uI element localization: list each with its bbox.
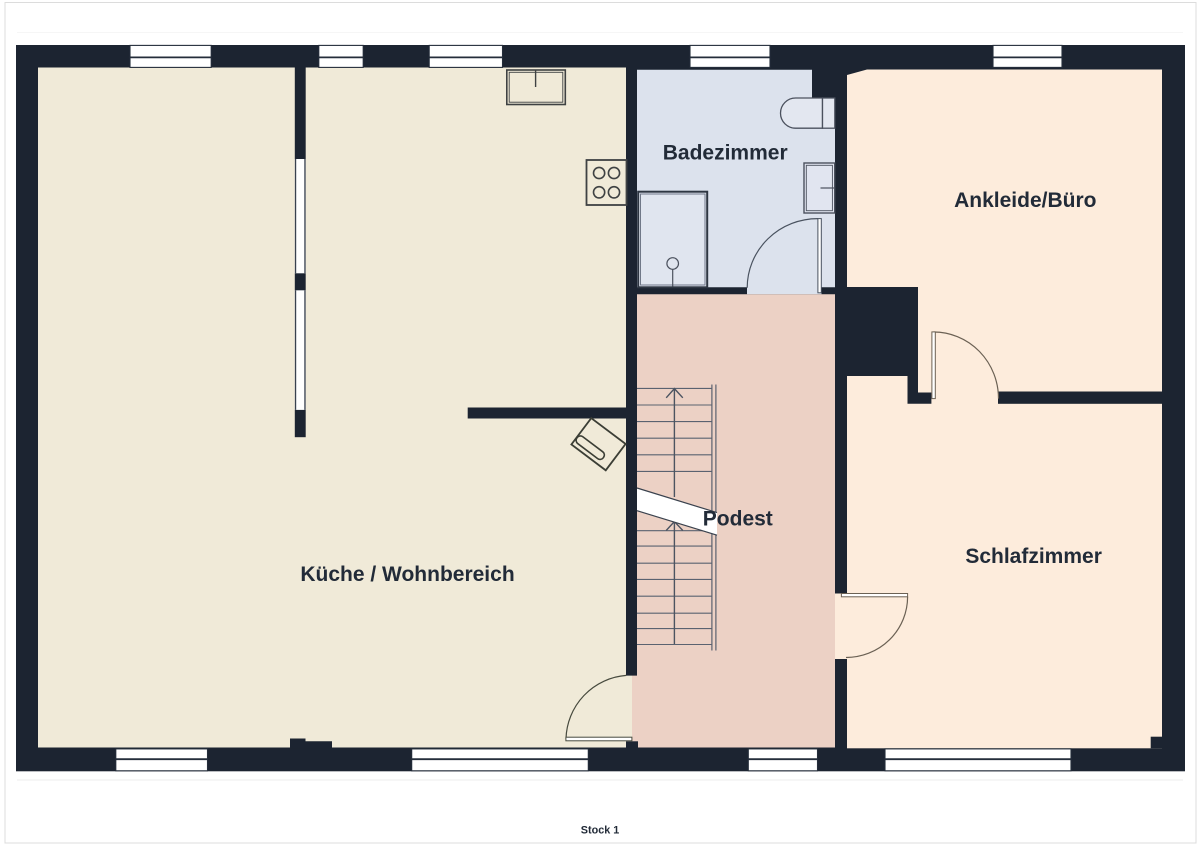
svg-text:Badezimmer: Badezimmer <box>663 142 788 165</box>
svg-text:Stock 1: Stock 1 <box>581 825 619 837</box>
svg-text:Schlafzimmer: Schlafzimmer <box>965 545 1102 568</box>
svg-text:Podest: Podest <box>703 507 773 530</box>
svg-text:Küche / Wohnbereich: Küche / Wohnbereich <box>300 563 514 586</box>
svg-text:Ankleide/Büro: Ankleide/Büro <box>954 189 1096 212</box>
